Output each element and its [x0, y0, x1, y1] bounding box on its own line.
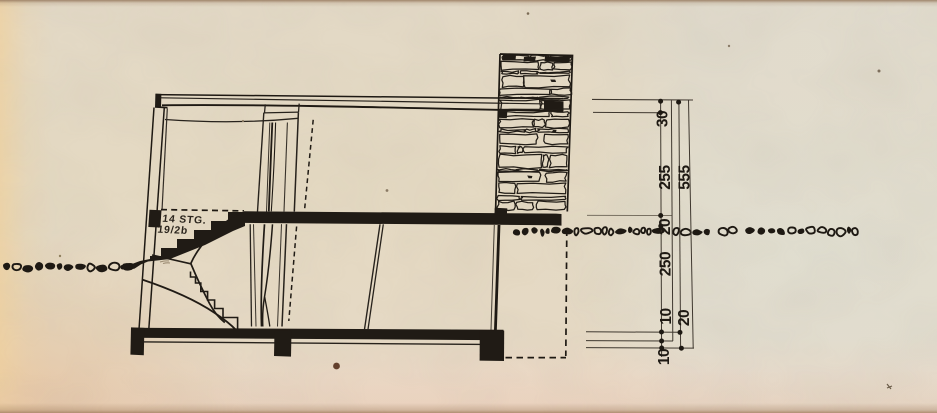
svg-text:250: 250	[658, 252, 675, 276]
svg-text:255: 255	[657, 164, 674, 189]
svg-text:555: 555	[677, 164, 694, 189]
svg-text:20: 20	[676, 310, 693, 326]
svg-text:10: 10	[658, 308, 675, 324]
svg-text:30: 30	[655, 111, 672, 127]
svg-text:20: 20	[657, 219, 674, 235]
svg-text:10: 10	[656, 349, 673, 365]
svg-text:19/2b: 19/2b	[157, 225, 189, 237]
